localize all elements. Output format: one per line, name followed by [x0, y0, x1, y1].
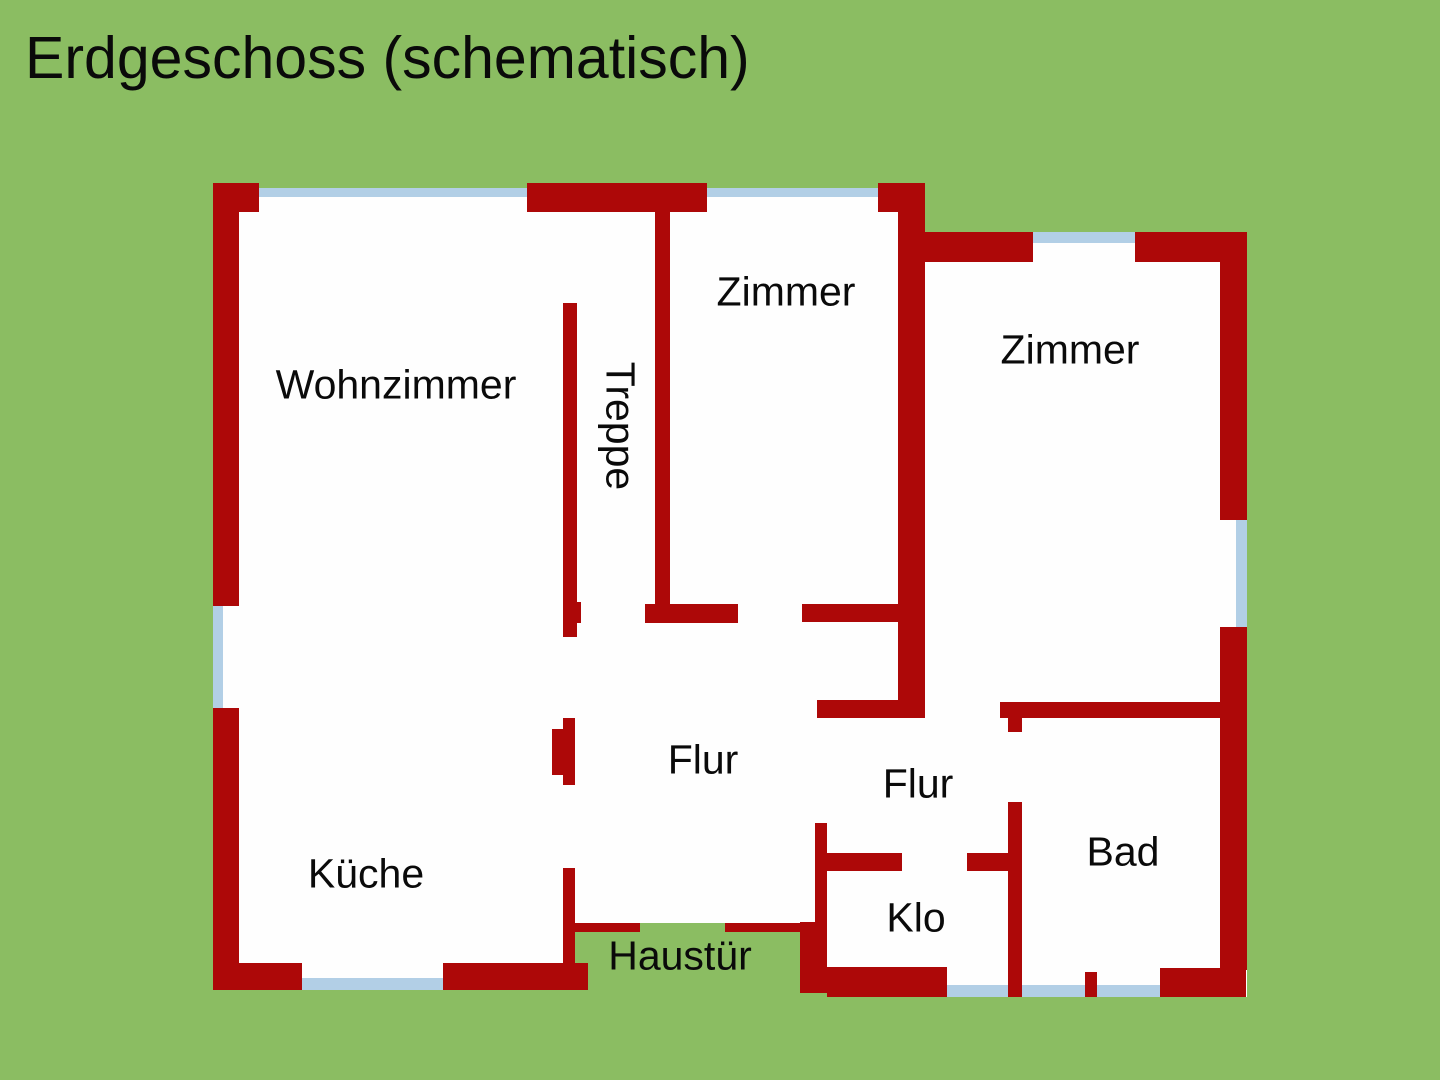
wall-right-upper — [1220, 232, 1247, 520]
wall-klo-left — [815, 823, 827, 923]
wall-bottom-right-corner — [1160, 968, 1246, 997]
room-label-kueche: Küche — [308, 854, 424, 895]
room-label-treppe: Treppe — [600, 362, 641, 490]
room-label-zimmer-1: Zimmer — [717, 272, 856, 313]
wall-middle-foot — [817, 700, 923, 718]
wall-lower-left-vertical — [563, 868, 575, 990]
wall-middle-vertical — [898, 212, 925, 718]
wall-top-left-corner — [213, 183, 259, 212]
wall-bad-left — [1008, 802, 1022, 997]
wall-haustuer-strip-right — [725, 923, 800, 932]
room-label-klo: Klo — [886, 898, 945, 939]
wall-window-divider-tab — [1085, 972, 1097, 997]
wall-bad-left-tab — [1008, 718, 1022, 732]
window-right-wall — [1236, 520, 1247, 627]
wall-treppe-nub — [563, 602, 581, 623]
wall-top-right-left — [920, 232, 1033, 262]
wall-top-middle — [527, 183, 707, 212]
wall-top-block — [878, 183, 925, 212]
page-title: Erdgeschoss (schematisch) — [25, 26, 750, 91]
room-label-wohnzimmer: Wohnzimmer — [276, 365, 517, 406]
wall-treppe — [563, 303, 577, 637]
wall-zimmer-flur — [802, 604, 898, 622]
window-bottom-bad-right — [1097, 985, 1160, 997]
window-top-left — [259, 188, 527, 197]
wall-treppe-foot — [645, 604, 738, 623]
room-label-zimmer-2: Zimmer — [1001, 330, 1140, 371]
window-left-wall — [213, 606, 223, 708]
window-top-right — [1033, 232, 1135, 243]
wall-door-jamb-bump — [552, 729, 563, 775]
window-top-middle — [707, 188, 878, 197]
wall-right-lower — [1220, 627, 1247, 970]
wall-bad-top — [1000, 702, 1220, 718]
room-label-haustuer: Haustür — [608, 936, 752, 977]
room-label-flur-2: Flur — [883, 764, 954, 805]
wall-haustuer-strip-left — [575, 923, 640, 932]
wall-bottom-kueche-left — [213, 963, 302, 990]
wall-haustuer-block — [800, 922, 827, 993]
wall-left-lower — [213, 708, 239, 990]
wall-door-jamb — [563, 718, 575, 785]
room-label-bad: Bad — [1087, 832, 1160, 873]
window-bottom-bad-left — [1022, 985, 1085, 997]
window-bottom-kueche — [302, 978, 443, 990]
floorplan-canvas: Erdgeschoss (schematisch) WohnzimmerTrep… — [0, 0, 1440, 1080]
window-bottom-klo — [947, 985, 1008, 997]
wall-left-upper — [213, 212, 239, 606]
wall-klo-top-right — [967, 853, 1022, 871]
wall-klo-top-left — [827, 853, 902, 871]
wall-klo-bottom — [827, 967, 947, 997]
wall-treppe-zimmer — [655, 212, 670, 604]
room-label-flur-1: Flur — [668, 740, 739, 781]
